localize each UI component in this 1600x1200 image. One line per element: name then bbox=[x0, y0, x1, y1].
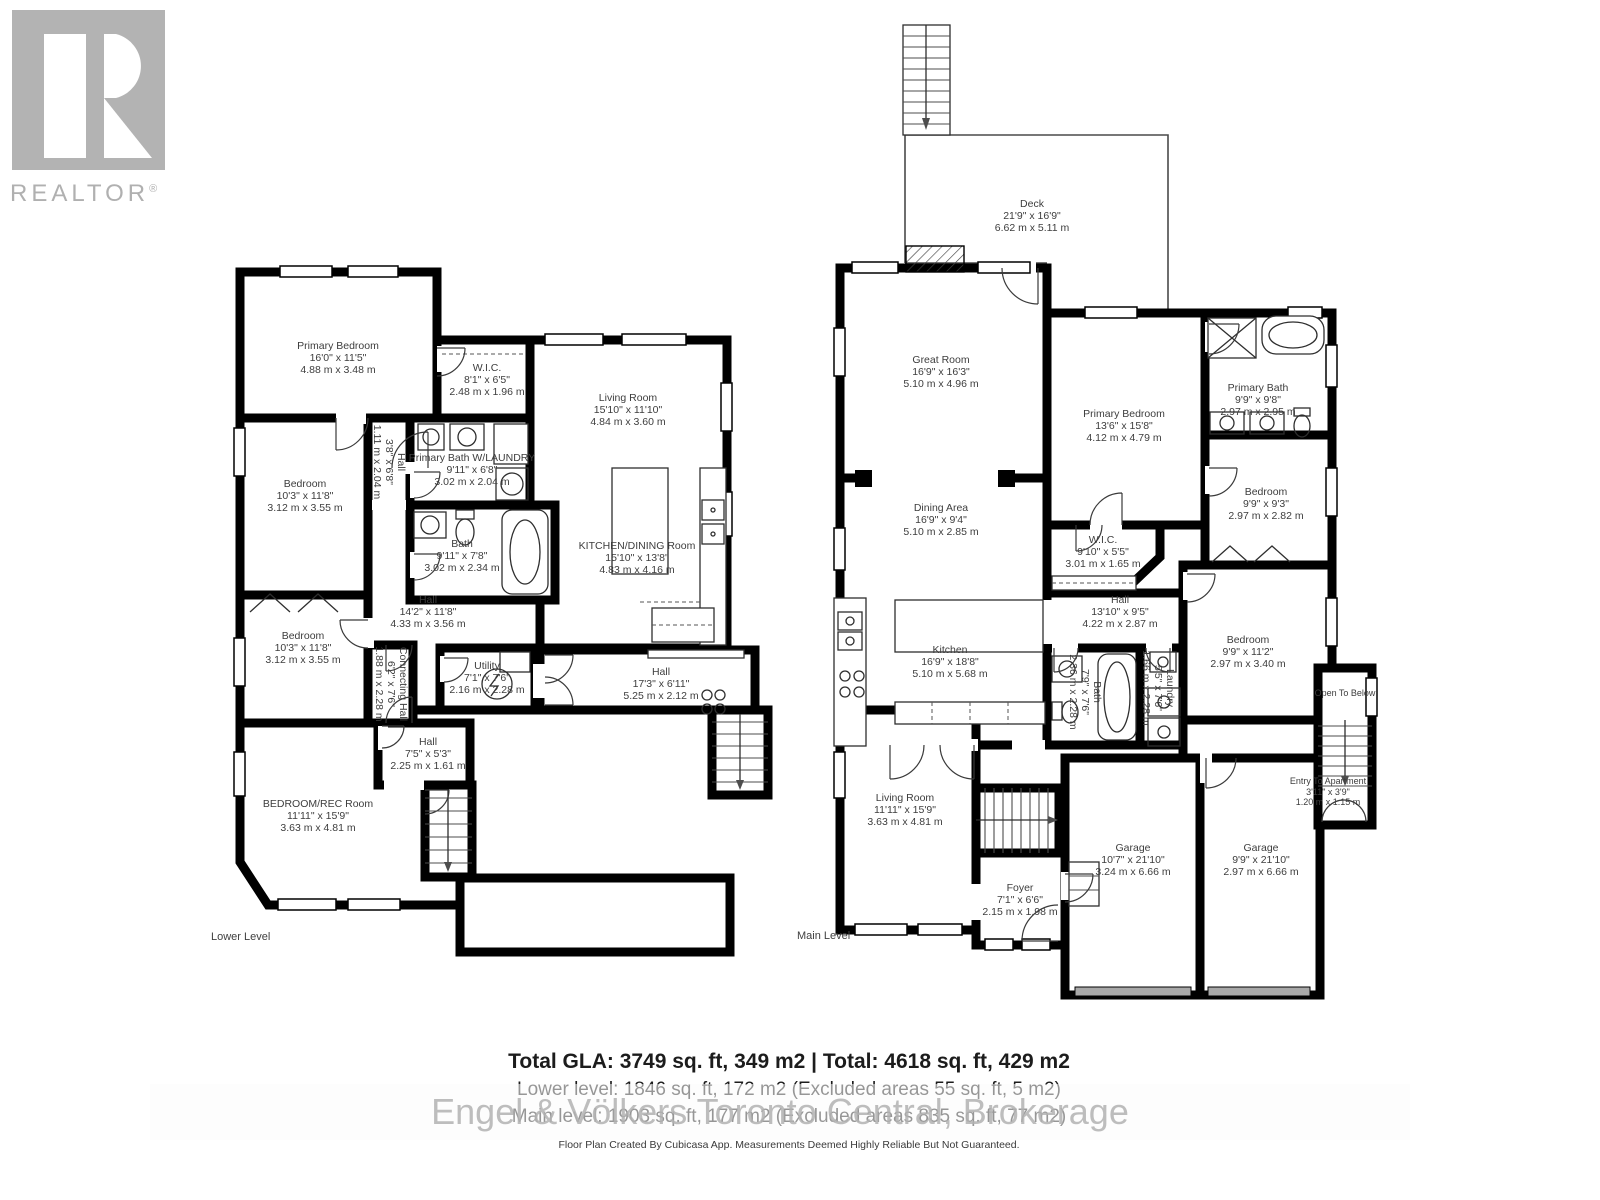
lower-level-caption: Lower Level bbox=[211, 931, 270, 943]
room-label-lower-bedroom-2: Bedroom10'3" x 11'8"3.12 m x 3.55 m bbox=[265, 630, 340, 666]
room-label-main-bath: Bath7'9" x 7'6"2.36 m x 2.28 m bbox=[1067, 654, 1103, 729]
room-label-main-deck: Deck21'9" x 16'9"6.62 m x 5.11 m bbox=[995, 198, 1070, 234]
room-label-lower-living-room: Living Room15'10" x 11'10"4.84 m x 3.60 … bbox=[590, 392, 665, 428]
room-label-main-wic: W.I.C.9'10" x 5'5"3.01 m x 1.65 m bbox=[1065, 534, 1140, 570]
room-label-lower-bedroom-1: Bedroom10'3" x 11'8"3.12 m x 3.55 m bbox=[267, 478, 342, 514]
room-label-lower-bath: Bath9'11" x 7'8"3.02 m x 2.34 m bbox=[424, 538, 499, 574]
room-label-main-primary-bath: Primary Bath9'9" x 9'8"2.97 m x 2.95 m bbox=[1220, 382, 1295, 418]
disclaimer-line: Floor Plan Created By Cubicasa App. Meas… bbox=[0, 1139, 1578, 1151]
room-label-lower-wic: W.I.C.8'1" x 6'5"2.48 m x 1.96 m bbox=[449, 362, 524, 398]
room-label-lower-utility: Utility7'1" x 7'6"2.16 m x 2.28 m bbox=[449, 660, 524, 696]
room-label-main-dining-area: Dining Area16'9" x 9'4"5.10 m x 2.85 m bbox=[903, 502, 978, 538]
room-label-main-garage-1: Garage10'7" x 21'10"3.24 m x 6.66 m bbox=[1095, 842, 1170, 878]
room-label-lower-hall-stairs: Hall7'5" x 5'3"2.25 m x 1.61 m bbox=[390, 736, 465, 772]
realtor-wordmark: REALTOR® bbox=[10, 180, 161, 208]
room-label-main-hall: Hall13'10" x 9'5"4.22 m x 2.87 m bbox=[1082, 594, 1157, 630]
room-label-lower-primary-bedroom: Primary Bedroom16'0" x 11'5"4.88 m x 3.4… bbox=[297, 340, 379, 376]
room-label-main-foyer: Foyer7'1" x 6'6"2.15 m x 1.98 m bbox=[982, 882, 1057, 918]
room-label-lower-hall-small: Hall3'8" x 6'8"1.11 m x 2.04 m bbox=[371, 425, 407, 500]
lower-level-area-line: Lower level: 1846 sq. ft, 172 m2 (Exclud… bbox=[0, 1079, 1578, 1101]
room-label-main-bedroom-tr: Bedroom9'9" x 9'3"2.97 m x 2.82 m bbox=[1228, 486, 1303, 522]
room-label-main-garage-2: Garage9'9" x 21'10"2.97 m x 6.66 m bbox=[1223, 842, 1298, 878]
room-label-main-laundry: Laundry5'5" x 7'6"1.66 m x 2.28 m bbox=[1140, 650, 1176, 725]
room-label-main-bedroom-br: Bedroom9'9" x 11'2"2.97 m x 3.40 m bbox=[1210, 634, 1285, 670]
registered-trademark-symbol: ® bbox=[149, 183, 161, 195]
room-label-main-living-room: Living Room11'11" x 15'9"3.63 m x 4.81 m bbox=[867, 792, 942, 828]
total-gla-line: Total GLA: 3749 sq. ft, 349 m2 | Total: … bbox=[0, 1050, 1578, 1074]
realtor-logo-icon bbox=[12, 10, 165, 170]
room-label-main-kitchen: Kitchen16'9" x 18'8"5.10 m x 5.68 m bbox=[912, 644, 987, 680]
room-label-main-open-to-below: Open To Below bbox=[1315, 688, 1376, 699]
room-label-lower-hall-main: Hall14'2" x 11'8"4.33 m x 3.56 m bbox=[390, 594, 465, 630]
room-label-main-entry-to-apartment: Entry To Apartment3'11" x 3'9"1.20 m x 1… bbox=[1290, 776, 1366, 808]
room-label-main-great-room: Great Room16'9" x 16'3"5.10 m x 4.96 m bbox=[903, 354, 978, 390]
floor-plan-canvas bbox=[0, 0, 1600, 1200]
room-label-lower-kitchen-dining: KITCHEN/DINING Room15'10" x 13'8"4.83 m … bbox=[579, 540, 696, 576]
main-level-caption: Main Level bbox=[797, 930, 850, 942]
area-summary: Total GLA: 3749 sq. ft, 349 m2 | Total: … bbox=[0, 1050, 1578, 1151]
room-label-main-primary-bedroom: Primary Bedroom13'6" x 15'8"4.12 m x 4.7… bbox=[1083, 408, 1165, 444]
room-label-lower-connecting-hall: Connecting Hall6'2" x 7'6"1.88 m x 2.28 … bbox=[373, 646, 409, 721]
room-label-lower-hall-right: Hall17'3" x 6'11"5.25 m x 2.12 m bbox=[623, 666, 698, 702]
room-label-lower-bedroom-rec: BEDROOM/REC Room11'11" x 15'9"3.63 m x 4… bbox=[263, 798, 373, 834]
main-level-area-line: Main level: 1903 sq. ft, 177 m2 (Exclude… bbox=[0, 1106, 1578, 1128]
floor-plan-page: REALTOR® Primary Bedroom16'0" x 11'5"4.8… bbox=[0, 0, 1600, 1200]
room-label-lower-primary-bath: Primary Bath W/LAUNDRY9'11" x 6'8"3.02 m… bbox=[409, 452, 535, 488]
